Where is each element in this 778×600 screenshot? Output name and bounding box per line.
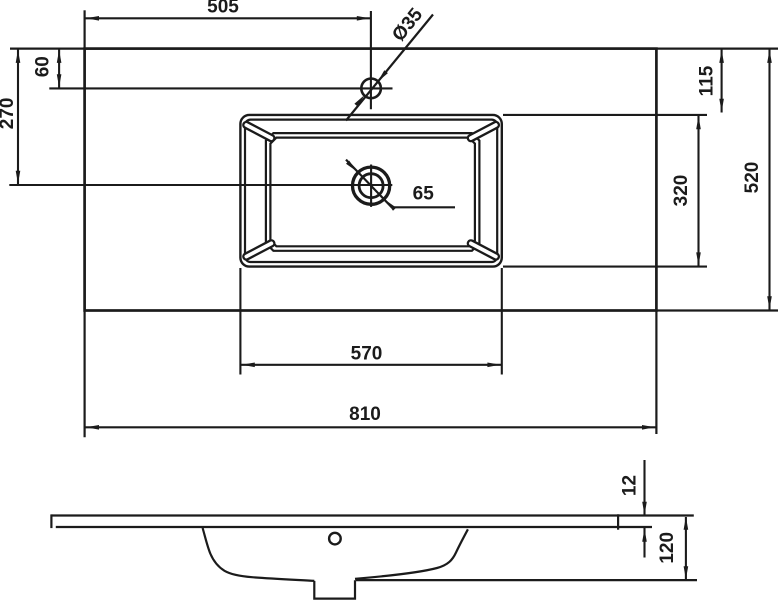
svg-text:65: 65 [413, 184, 435, 205]
svg-text:Ø35: Ø35 [388, 4, 427, 45]
svg-text:60: 60 [33, 56, 54, 77]
svg-text:115: 115 [697, 65, 718, 96]
svg-text:505: 505 [207, 0, 239, 18]
svg-text:570: 570 [351, 343, 383, 364]
svg-text:810: 810 [349, 404, 381, 425]
svg-text:320: 320 [671, 175, 692, 207]
svg-text:270: 270 [0, 98, 18, 130]
svg-text:520: 520 [742, 162, 763, 194]
svg-text:12: 12 [620, 475, 641, 496]
svg-text:120: 120 [657, 532, 678, 564]
